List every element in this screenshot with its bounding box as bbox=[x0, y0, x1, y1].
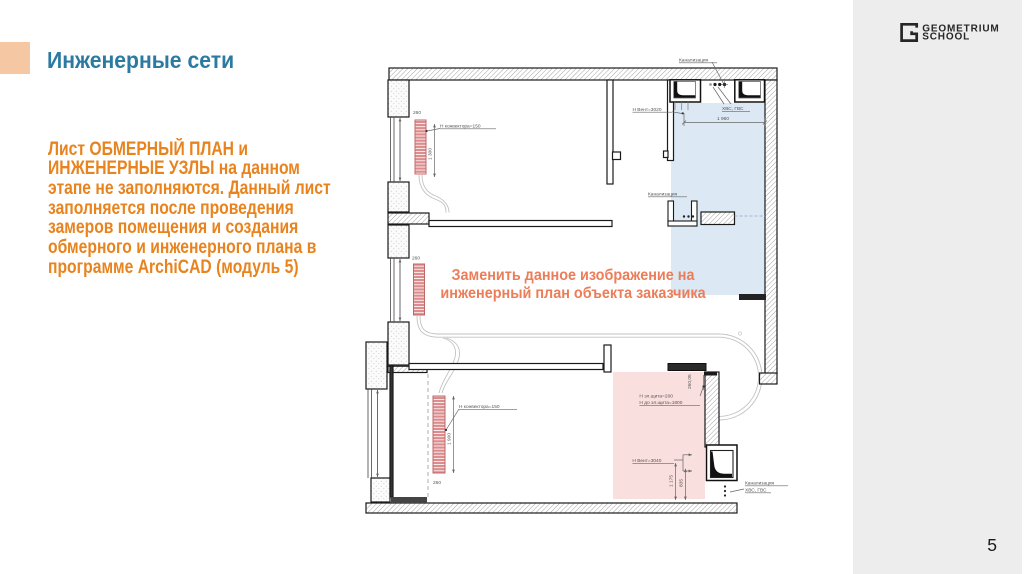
svg-text:1 900: 1 900 bbox=[447, 433, 453, 445]
svg-text:260: 260 bbox=[413, 110, 421, 116]
svg-text:1 175: 1 175 bbox=[669, 475, 675, 487]
svg-text:1 960: 1 960 bbox=[717, 116, 729, 122]
svg-text:260,05: 260,05 bbox=[687, 374, 693, 389]
svg-text:260: 260 bbox=[433, 480, 441, 486]
svg-text:835: 835 bbox=[679, 479, 685, 487]
svg-text:1 300: 1 300 bbox=[428, 148, 434, 160]
svg-text:Н эл.щита=200: Н эл.щита=200 bbox=[639, 394, 673, 400]
svg-text:260: 260 bbox=[412, 256, 420, 262]
svg-text:SCHOOL: SCHOOL bbox=[922, 32, 970, 43]
